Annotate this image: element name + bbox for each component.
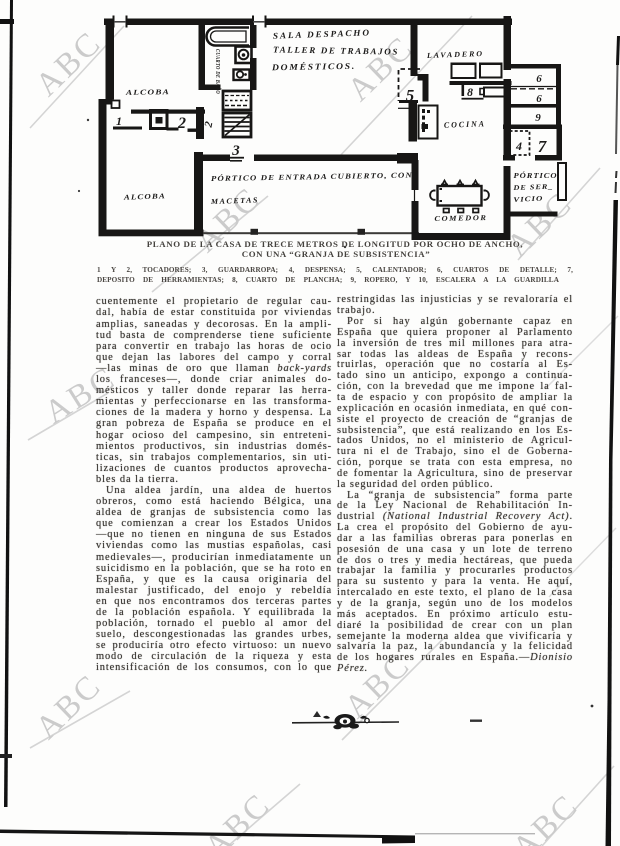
svg-text:COCINA: COCINA	[444, 119, 486, 129]
svg-text:LAVADERO: LAVADERO	[426, 49, 484, 60]
svg-text:PÓRTICO DE ENTRADA CUBIERTO, C: PÓRTICO DE ENTRADA CUBIERTO, CON	[211, 169, 413, 183]
svg-text:TALLER DE TRABAJOS: TALLER DE TRABAJOS	[273, 44, 399, 56]
svg-text:7: 7	[538, 137, 548, 156]
svg-text:1: 1	[116, 114, 122, 128]
svg-text:4: 4	[515, 139, 522, 153]
svg-text:CUARTO DE BAÑO: CUARTO DE BAÑO	[214, 49, 222, 94]
svg-text:3: 3	[231, 143, 240, 159]
svg-text:MACETAS: MACETAS	[210, 195, 259, 206]
svg-text:DOMÉSTICOS.: DOMÉSTICOS.	[271, 61, 356, 72]
svg-text:6: 6	[536, 93, 542, 105]
svg-text:ABC: ABC	[29, 24, 109, 103]
svg-text:ABC: ABC	[198, 786, 278, 846]
svg-text:ALCOBA: ALCOBA	[123, 191, 166, 202]
svg-text:COMEDOR: COMEDOR	[434, 213, 487, 223]
svg-text:9: 9	[535, 112, 541, 124]
svg-text:ABC: ABC	[506, 787, 586, 846]
svg-text:VICIO: VICIO	[513, 194, 543, 204]
svg-text:ABC: ABC	[29, 667, 109, 746]
svg-text:ALCOBA: ALCOBA	[125, 87, 170, 97]
svg-text:PÓRTICO: PÓRTICO	[514, 172, 558, 180]
svg-text:2: 2	[177, 115, 186, 132]
svg-text:DE SER_: DE SER_	[512, 183, 553, 192]
svg-text:8: 8	[467, 85, 473, 99]
svg-text:2: 2	[202, 120, 215, 129]
svg-text:SALA DESPACHO: SALA DESPACHO	[273, 27, 371, 40]
svg-text:6: 6	[536, 73, 542, 85]
